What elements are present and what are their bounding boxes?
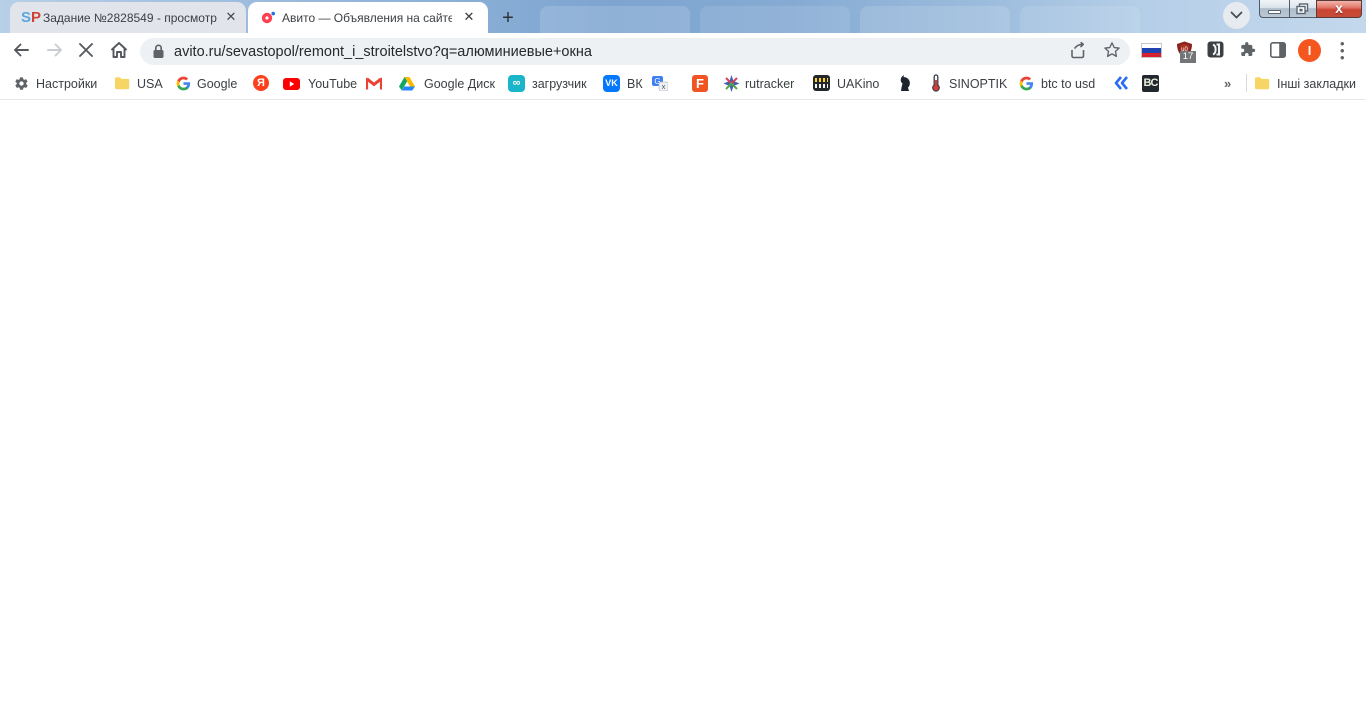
svg-text:x: x (662, 82, 666, 91)
